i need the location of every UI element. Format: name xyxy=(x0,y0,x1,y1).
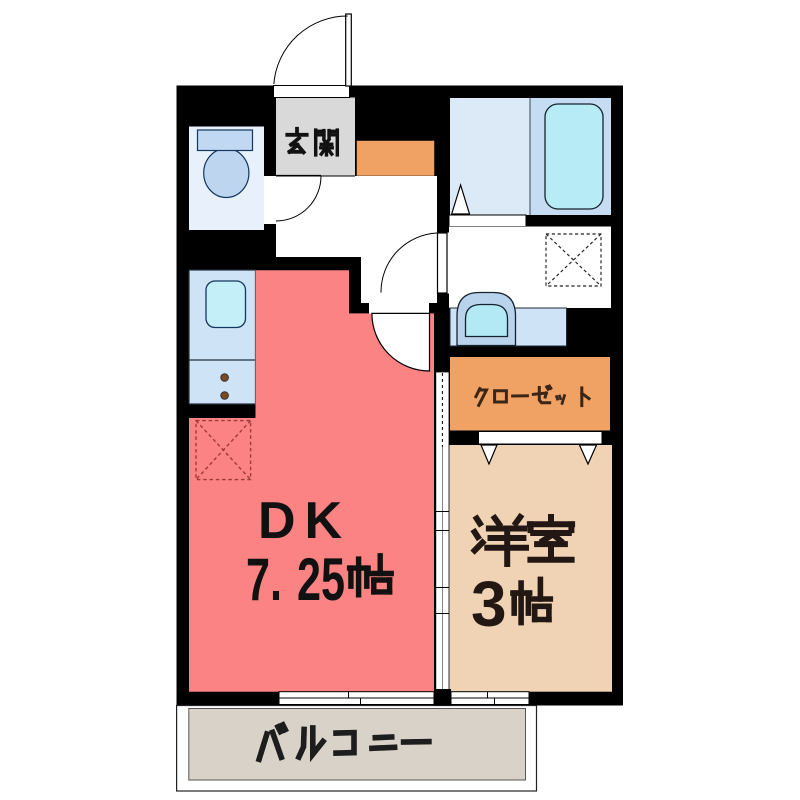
svg-text:25: 25 xyxy=(297,546,345,613)
svg-text:7.: 7. xyxy=(246,546,282,613)
svg-text:DK: DK xyxy=(258,492,351,550)
svg-text:3: 3 xyxy=(471,568,507,640)
